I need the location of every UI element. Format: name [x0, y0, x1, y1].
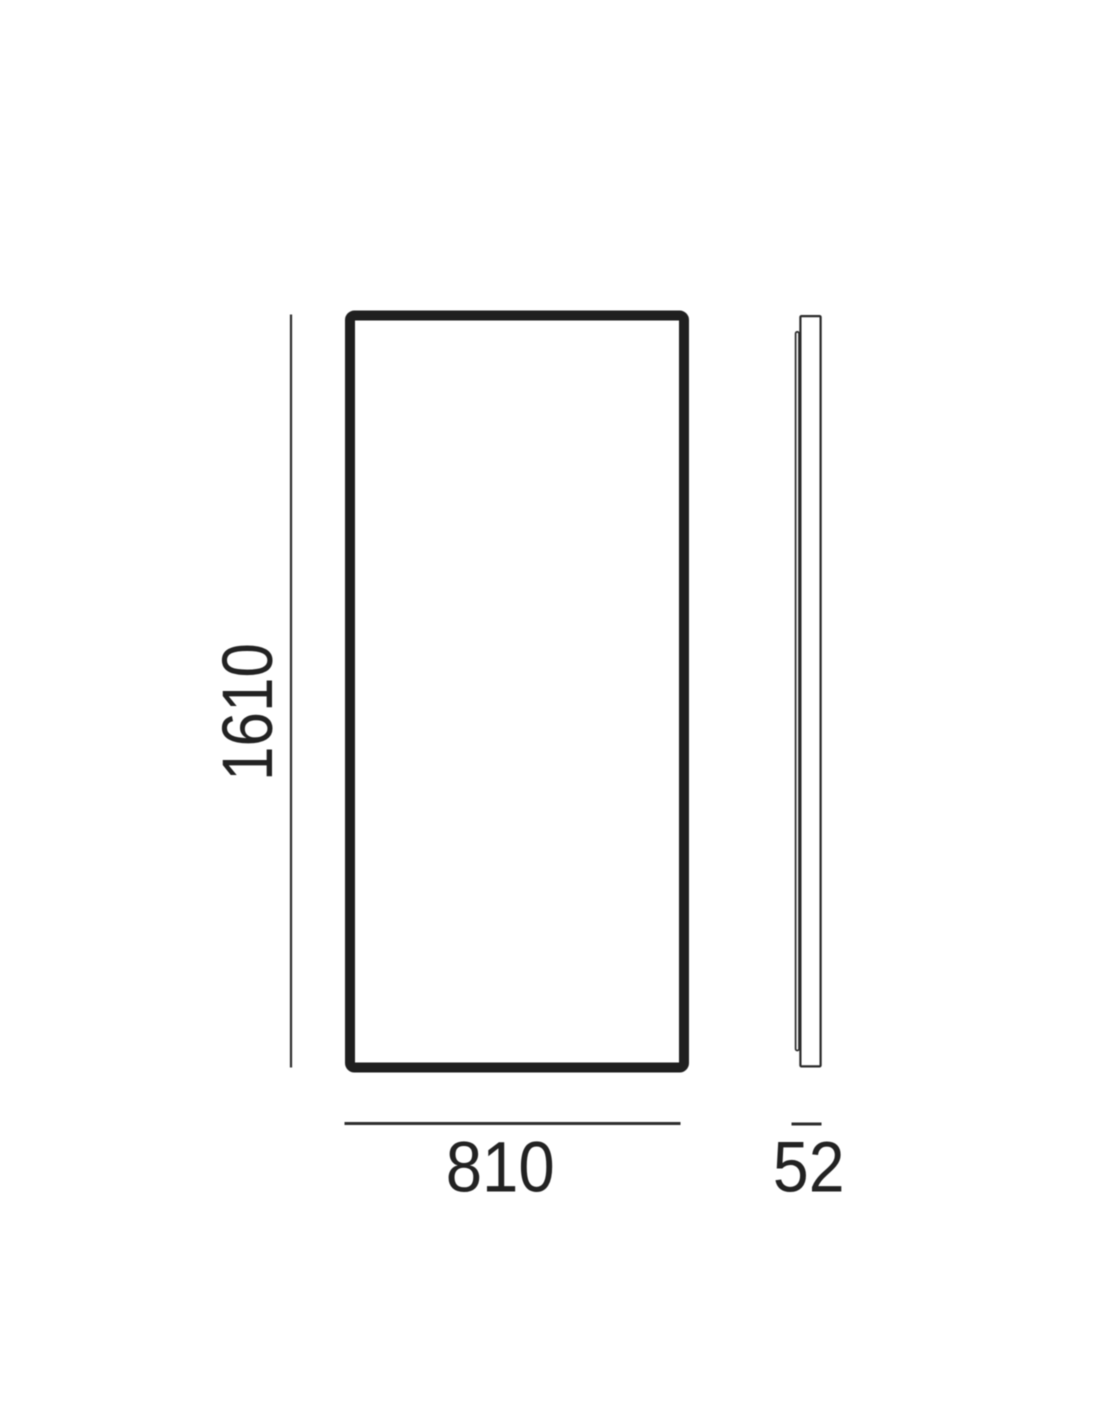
svg-text:52: 52	[773, 1127, 845, 1207]
svg-text:1610: 1610	[208, 643, 288, 781]
svg-text:810: 810	[446, 1127, 555, 1207]
